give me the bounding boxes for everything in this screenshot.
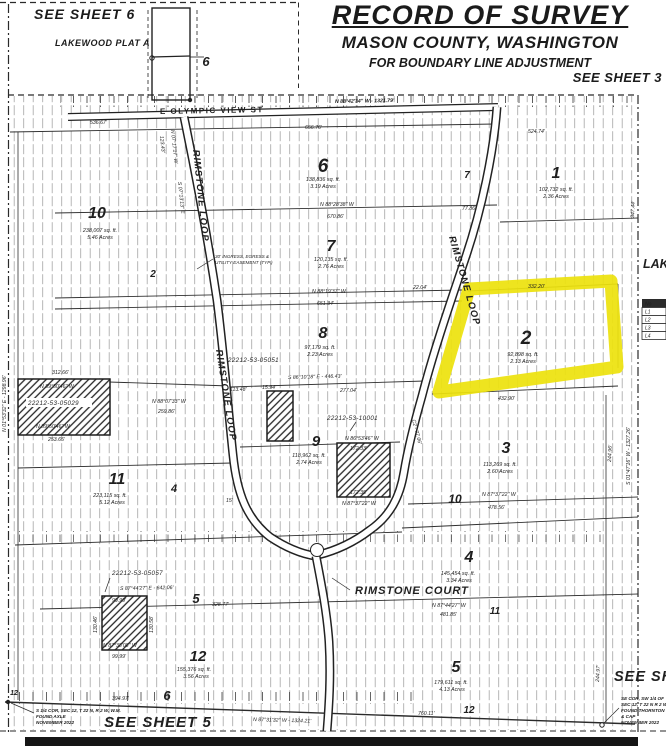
lot-area-sqft: 155,376 sq. ft. bbox=[177, 667, 211, 673]
lot-area-sqft: 120,135 sq. ft. bbox=[314, 257, 348, 263]
plat-lot-number: 6 bbox=[163, 688, 171, 703]
plat-lot-number: 12 bbox=[463, 705, 475, 716]
dim-label: 259.86' bbox=[157, 409, 176, 415]
lot-number: 11 bbox=[109, 471, 126, 488]
lot-area-acres: 2.74 Acres bbox=[295, 460, 322, 466]
dim-label: 328.77' bbox=[212, 602, 230, 608]
south-quarter-corner-point bbox=[6, 700, 10, 704]
title-block: RECORD OF SURVEY MASON COUNTY, WASHINGTO… bbox=[300, 0, 660, 70]
corner-note-line: & CAP bbox=[621, 714, 636, 719]
lot-number: 6 bbox=[318, 156, 329, 177]
lakewood-plat-a-label: LAKEWOOD PLAT A bbox=[55, 38, 150, 48]
dim-label: N 86°53'46" W bbox=[345, 436, 380, 442]
easement-note-line2: UTILITY EASEMENT (TYP.) bbox=[215, 260, 273, 265]
corner-note-line: S 1/4 COR, SEC 12, T 22 N, R 2 W, W.M. bbox=[36, 708, 121, 713]
street-label-olympic: E OLYMPIC VIEW ST bbox=[160, 105, 264, 116]
dim-label: N 01°53'32" E - 1298.96' bbox=[2, 374, 8, 432]
street-label-rimstone-court: RIMSTONE COURT bbox=[355, 585, 469, 597]
lot-area-sqft: 102,732 sq. ft. bbox=[539, 187, 573, 193]
page-title: RECORD OF SURVEY bbox=[300, 0, 660, 31]
lot-area-sqft: 97,179 sq. ft. bbox=[304, 345, 335, 351]
dim-label: 130.58' bbox=[149, 615, 155, 633]
lot-area-sqft: 138,836 sq. ft. bbox=[306, 177, 340, 183]
dim-label: 394.97' bbox=[112, 696, 130, 702]
dim-label: S 87°44'27" E - 642.06' bbox=[120, 585, 175, 592]
line-table-row: L1 bbox=[645, 310, 651, 316]
dim-label: 478.56' bbox=[488, 505, 506, 511]
lot-area-sqft: 118,962 sq. ft. bbox=[292, 453, 326, 459]
lot-area-sqft: 223,115 sq. ft. bbox=[92, 493, 127, 499]
plat-lot-number: 5 bbox=[192, 591, 200, 606]
highlighted-lot-area-acres: 2.13 Acres bbox=[509, 359, 536, 365]
plat-lot-number: 2 bbox=[149, 269, 156, 280]
line-table: No L1 L2 L3 L4 bbox=[642, 299, 666, 340]
dim-label: N 88°19'37" W bbox=[312, 289, 347, 295]
dim-label: 656.76' bbox=[305, 125, 323, 131]
dim-label: 253.65' bbox=[47, 437, 66, 443]
lot-number: 7 bbox=[327, 238, 337, 255]
dim-label: 77.86' bbox=[462, 206, 477, 212]
dim-label: N 88°28'38" W bbox=[320, 202, 355, 208]
dim-label: 651.34' bbox=[317, 301, 335, 307]
page-subtitle-2: FOR BOUNDARY LINE ADJUSTMENT bbox=[300, 56, 660, 70]
dim-label: N 87°37'22" W bbox=[342, 501, 377, 507]
record-of-survey-page: SEE SHEET 6 LAKEWOOD PLAT A RECORD OF SU… bbox=[0, 0, 666, 746]
corner-note-line: SE COR, SW 1/4 OF bbox=[621, 696, 664, 701]
lot-area-acres: 5.12 Acres bbox=[99, 500, 125, 506]
dim-label: N 87°37'22" W bbox=[482, 492, 517, 498]
plat-lot-number: 4 bbox=[170, 483, 177, 495]
dim-label: 172.33' bbox=[350, 446, 368, 452]
dim-label: N 89°50'46" W bbox=[36, 424, 71, 430]
dim-label: N 87°38'08" W bbox=[103, 643, 138, 649]
road-junction-monument bbox=[311, 544, 324, 557]
highlighted-lot-area-sqft: 92,898 sq. ft. bbox=[507, 352, 538, 358]
lot-area-acres: 2.36 Acres bbox=[542, 194, 569, 200]
tax-parcel-label: 22212-53-05051 bbox=[227, 357, 279, 364]
lot-area-sqft: 145,454 sq. ft. bbox=[441, 571, 475, 577]
dim-label: 244.97' bbox=[595, 664, 602, 683]
dim-label: 113.48' bbox=[230, 387, 247, 393]
dim-label: 172.35' bbox=[350, 490, 368, 496]
lot-number: 5 bbox=[452, 659, 462, 676]
see-sheet-5-label: SEE SHEET 5 bbox=[104, 714, 212, 731]
corner-note-line: SEC 12, T 22 N R 2 W bbox=[621, 702, 666, 707]
see-sheet-3-label: SEE SHEET 3 bbox=[573, 70, 662, 85]
see-sheet-6-label: SEE SHEET 6 bbox=[34, 6, 135, 22]
easement-note-line1: 30' INGRESS, EGRESS & bbox=[215, 254, 269, 259]
scan-edge-bar bbox=[25, 737, 638, 746]
tick-row-bottom bbox=[10, 692, 418, 704]
plat-lot-number: 10 bbox=[448, 492, 462, 506]
line-table-row: L4 bbox=[645, 334, 651, 340]
dim-label: 99.99' bbox=[112, 598, 127, 604]
dim-label: 524.74' bbox=[528, 129, 546, 135]
dim-label: 670.86' bbox=[327, 214, 345, 220]
corner-note-line: FOUND THORNTON bbox=[621, 708, 665, 713]
plat-lot-number: 11 bbox=[490, 606, 501, 617]
tax-parcel-label: 22212-53-10001 bbox=[326, 415, 378, 422]
tick-row-mid bbox=[15, 531, 603, 542]
see-sheet-right-label: SEE SHEET bbox=[614, 669, 666, 685]
lot-number: 1 bbox=[552, 165, 561, 182]
dim-label: 22.04' bbox=[412, 285, 428, 291]
dim-label: 432.90' bbox=[498, 396, 516, 402]
lot-number: 8 bbox=[319, 325, 328, 342]
dim-label: 347.44' bbox=[630, 200, 637, 218]
dim-label: 99.99' bbox=[112, 654, 127, 660]
highlighted-lot-number: 2 bbox=[520, 328, 532, 349]
lot-number: 10 bbox=[88, 205, 106, 222]
lot-area-acres: 2.60 Acres bbox=[486, 469, 513, 475]
tax-parcel-label: 22212-53-05029 bbox=[27, 400, 79, 407]
tax-parcel-label: 22212-53-05057 bbox=[111, 570, 163, 577]
lot-area-acres: 3.34 Acres bbox=[446, 578, 472, 584]
lot-area-sqft: 238,007 sq. ft. bbox=[82, 228, 117, 234]
lot-number: 9 bbox=[312, 433, 321, 450]
corner-note-line: FOUND AXLE bbox=[36, 714, 67, 719]
dim-label: 244.96' bbox=[607, 444, 614, 463]
se-corner-point bbox=[600, 723, 604, 727]
dim-label: 332.20' bbox=[528, 284, 546, 290]
dim-label: N 88°07'33" W bbox=[152, 399, 187, 405]
dim-label: 481.85' bbox=[440, 612, 458, 618]
dim-label: N 87°44'27" W bbox=[432, 603, 467, 609]
lot-area-acres: 2.23 Acres bbox=[306, 352, 333, 358]
lot-area-acres: 3.56 Acres bbox=[183, 674, 209, 680]
line-table-row: L2 bbox=[645, 318, 651, 324]
lot-number: 3 bbox=[502, 440, 511, 457]
survey-map: 6 bbox=[0, 0, 666, 746]
lot-area-sqft: 113,269 sq. ft. bbox=[483, 462, 517, 468]
dim-label: N 89°50'46" W bbox=[40, 384, 75, 390]
line-table-row: L3 bbox=[645, 326, 651, 332]
lakewood-right-label: LAKE bbox=[643, 257, 666, 271]
corner-note-line: NOVEMBER 2022 bbox=[36, 720, 74, 725]
lot-area-sqft: 179,611 sq. ft. bbox=[434, 680, 468, 686]
lot-area-acres: 4.13 Acres bbox=[439, 687, 465, 693]
inset-lot-number: 6 bbox=[202, 54, 210, 69]
line-table-header: No bbox=[645, 302, 652, 308]
lot-area-acres: 5.46 Acres bbox=[87, 235, 113, 241]
page-subtitle: MASON COUNTY, WASHINGTON bbox=[300, 33, 660, 53]
dim-label: 536.67' bbox=[90, 120, 108, 126]
dim-label: N 88°42'34" W - 1321.79' bbox=[335, 98, 395, 105]
lot-number: 4 bbox=[464, 549, 474, 566]
corner-note-line: NOVEMBER 2022 bbox=[621, 720, 659, 725]
dim-label: 277.04' bbox=[339, 388, 358, 394]
dim-label: 130.46' bbox=[93, 615, 99, 633]
lot-area-acres: 3.19 Acres bbox=[310, 184, 336, 190]
dim-label: 15' bbox=[226, 498, 234, 504]
dim-label: 15.94' bbox=[262, 385, 277, 391]
dim-label: 312.66' bbox=[52, 370, 70, 376]
lot-number: 12 bbox=[190, 648, 207, 665]
dim-label: S 01°47'16" W - 1327.26' bbox=[626, 426, 632, 485]
dim-label: 760.11' bbox=[418, 711, 435, 717]
plat-lot-number: 7 bbox=[464, 170, 470, 181]
lot-area-acres: 2.76 Acres bbox=[317, 264, 344, 270]
plat-lot-number: 12 bbox=[10, 690, 18, 697]
